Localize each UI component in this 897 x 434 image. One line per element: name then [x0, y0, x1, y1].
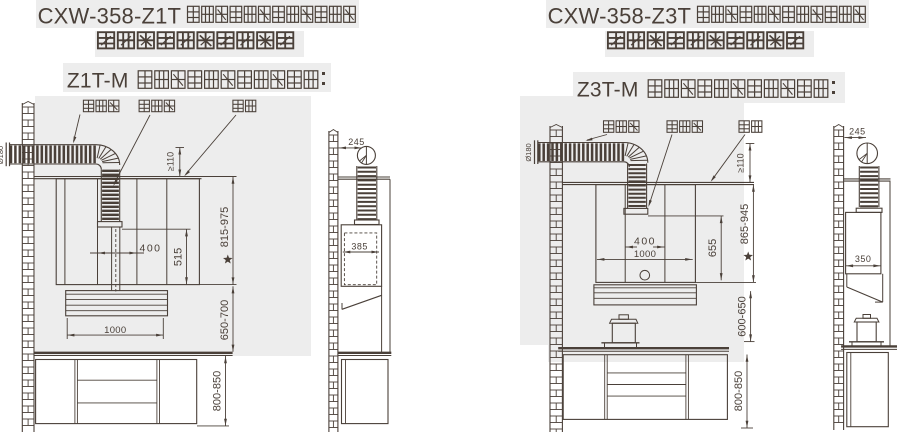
svg-text:Z1T-M: Z1T-M [67, 70, 129, 93]
svg-text:650-700: 650-700 [219, 300, 231, 340]
svg-text:≥110: ≥110 [166, 152, 176, 171]
svg-text:CXW-358-Z1T: CXW-358-Z1T [38, 4, 182, 29]
svg-text:400: 400 [140, 243, 162, 255]
svg-text:385: 385 [351, 242, 368, 252]
svg-text:865-945: 865-945 [739, 204, 751, 244]
svg-text:1000: 1000 [104, 325, 126, 336]
svg-text:515: 515 [173, 248, 185, 266]
svg-text:800-850: 800-850 [733, 371, 745, 411]
svg-text:245: 245 [348, 137, 365, 147]
svg-text:815-975: 815-975 [219, 207, 231, 247]
svg-text:Z3T-M: Z3T-M [577, 79, 639, 102]
svg-text:1000: 1000 [634, 249, 656, 260]
svg-text:655: 655 [707, 239, 719, 257]
svg-text:≥110: ≥110 [736, 153, 746, 172]
svg-text:245: 245 [849, 127, 866, 137]
svg-text:Ø180: Ø180 [0, 146, 5, 164]
svg-text:600-650: 600-650 [736, 296, 748, 336]
svg-text:Ø180: Ø180 [524, 143, 533, 161]
svg-text:400: 400 [634, 236, 656, 248]
svg-text:350: 350 [855, 254, 872, 264]
svg-text:CXW-358-Z3T: CXW-358-Z3T [548, 4, 692, 29]
svg-text:800-850: 800-850 [211, 371, 223, 411]
